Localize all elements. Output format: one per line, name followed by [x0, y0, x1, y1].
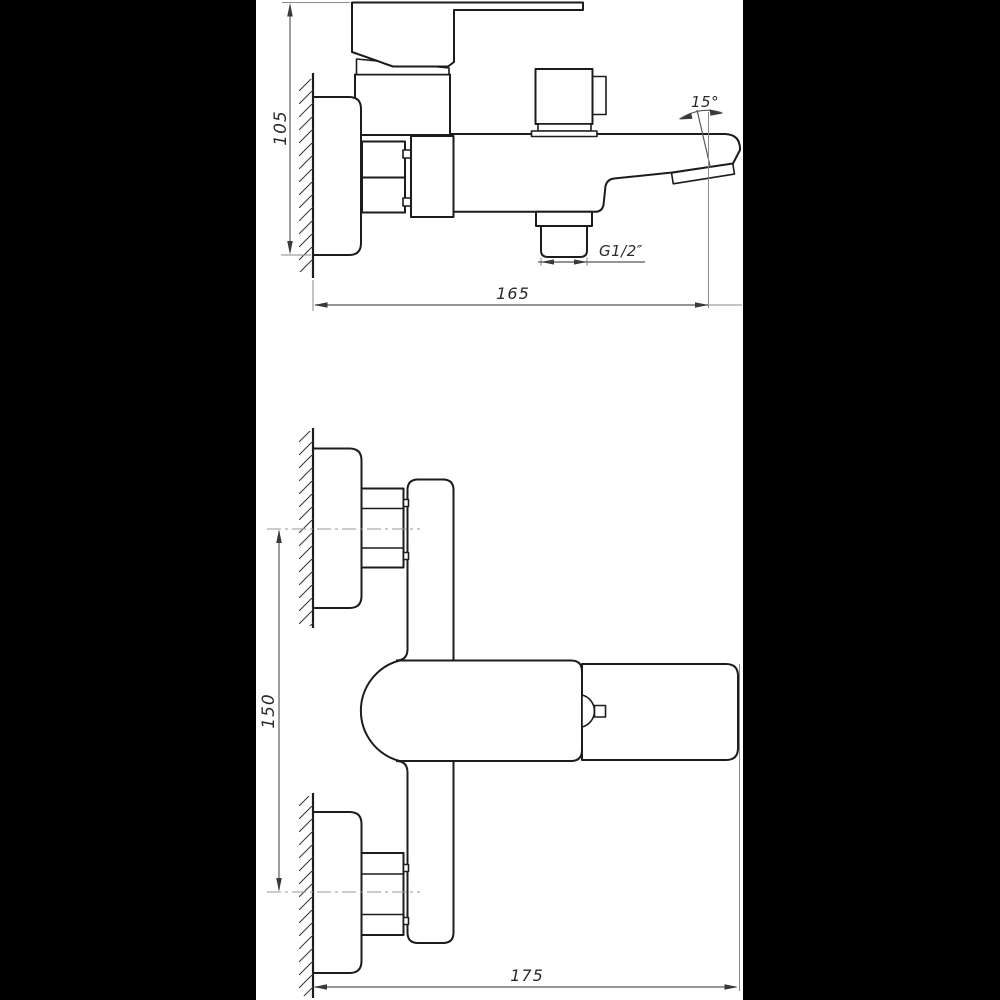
diverter-flange-1 [538, 124, 591, 131]
dim-label-g12: G1/2″ [599, 242, 643, 260]
wall-plate-side [313, 97, 361, 255]
stub-bottom-b [404, 918, 409, 925]
dim-label-150: 150 [259, 693, 279, 728]
stub-top-b [404, 553, 409, 560]
wall-hatching-side [299, 79, 313, 272]
thread-collar [536, 212, 592, 226]
hex-nut-bottom [362, 853, 404, 935]
check-valve-block [411, 136, 454, 217]
hex-nut-top [362, 489, 404, 568]
eccentric-nut-lower [362, 178, 405, 213]
dim-label-175: 175 [510, 966, 544, 985]
technical-drawing: 105 15° G1/2″ 165 [0, 0, 1000, 1000]
diverter-knob-stem [595, 706, 606, 718]
mixer-body-side [355, 75, 450, 136]
thread-nipple [541, 226, 587, 257]
diverter-flange-2 [532, 131, 598, 137]
letterbox-right [743, 0, 1000, 1000]
dim-label-15deg: 15° [691, 93, 719, 111]
screenshot-canvas: 105 15° G1/2″ 165 [0, 0, 1000, 1000]
stub-top-a [404, 500, 409, 507]
dim-label-165: 165 [496, 284, 530, 303]
shower-diverter-block [536, 69, 593, 124]
wall-flange-top [313, 449, 362, 609]
stub-bottom-a [404, 865, 409, 872]
mixer-body-front [361, 661, 582, 762]
dim-label-105: 105 [271, 110, 291, 145]
letterbox-left [0, 0, 256, 1000]
eccentric-nut-upper [362, 142, 405, 178]
wall-hatching-front-lower [299, 796, 313, 996]
